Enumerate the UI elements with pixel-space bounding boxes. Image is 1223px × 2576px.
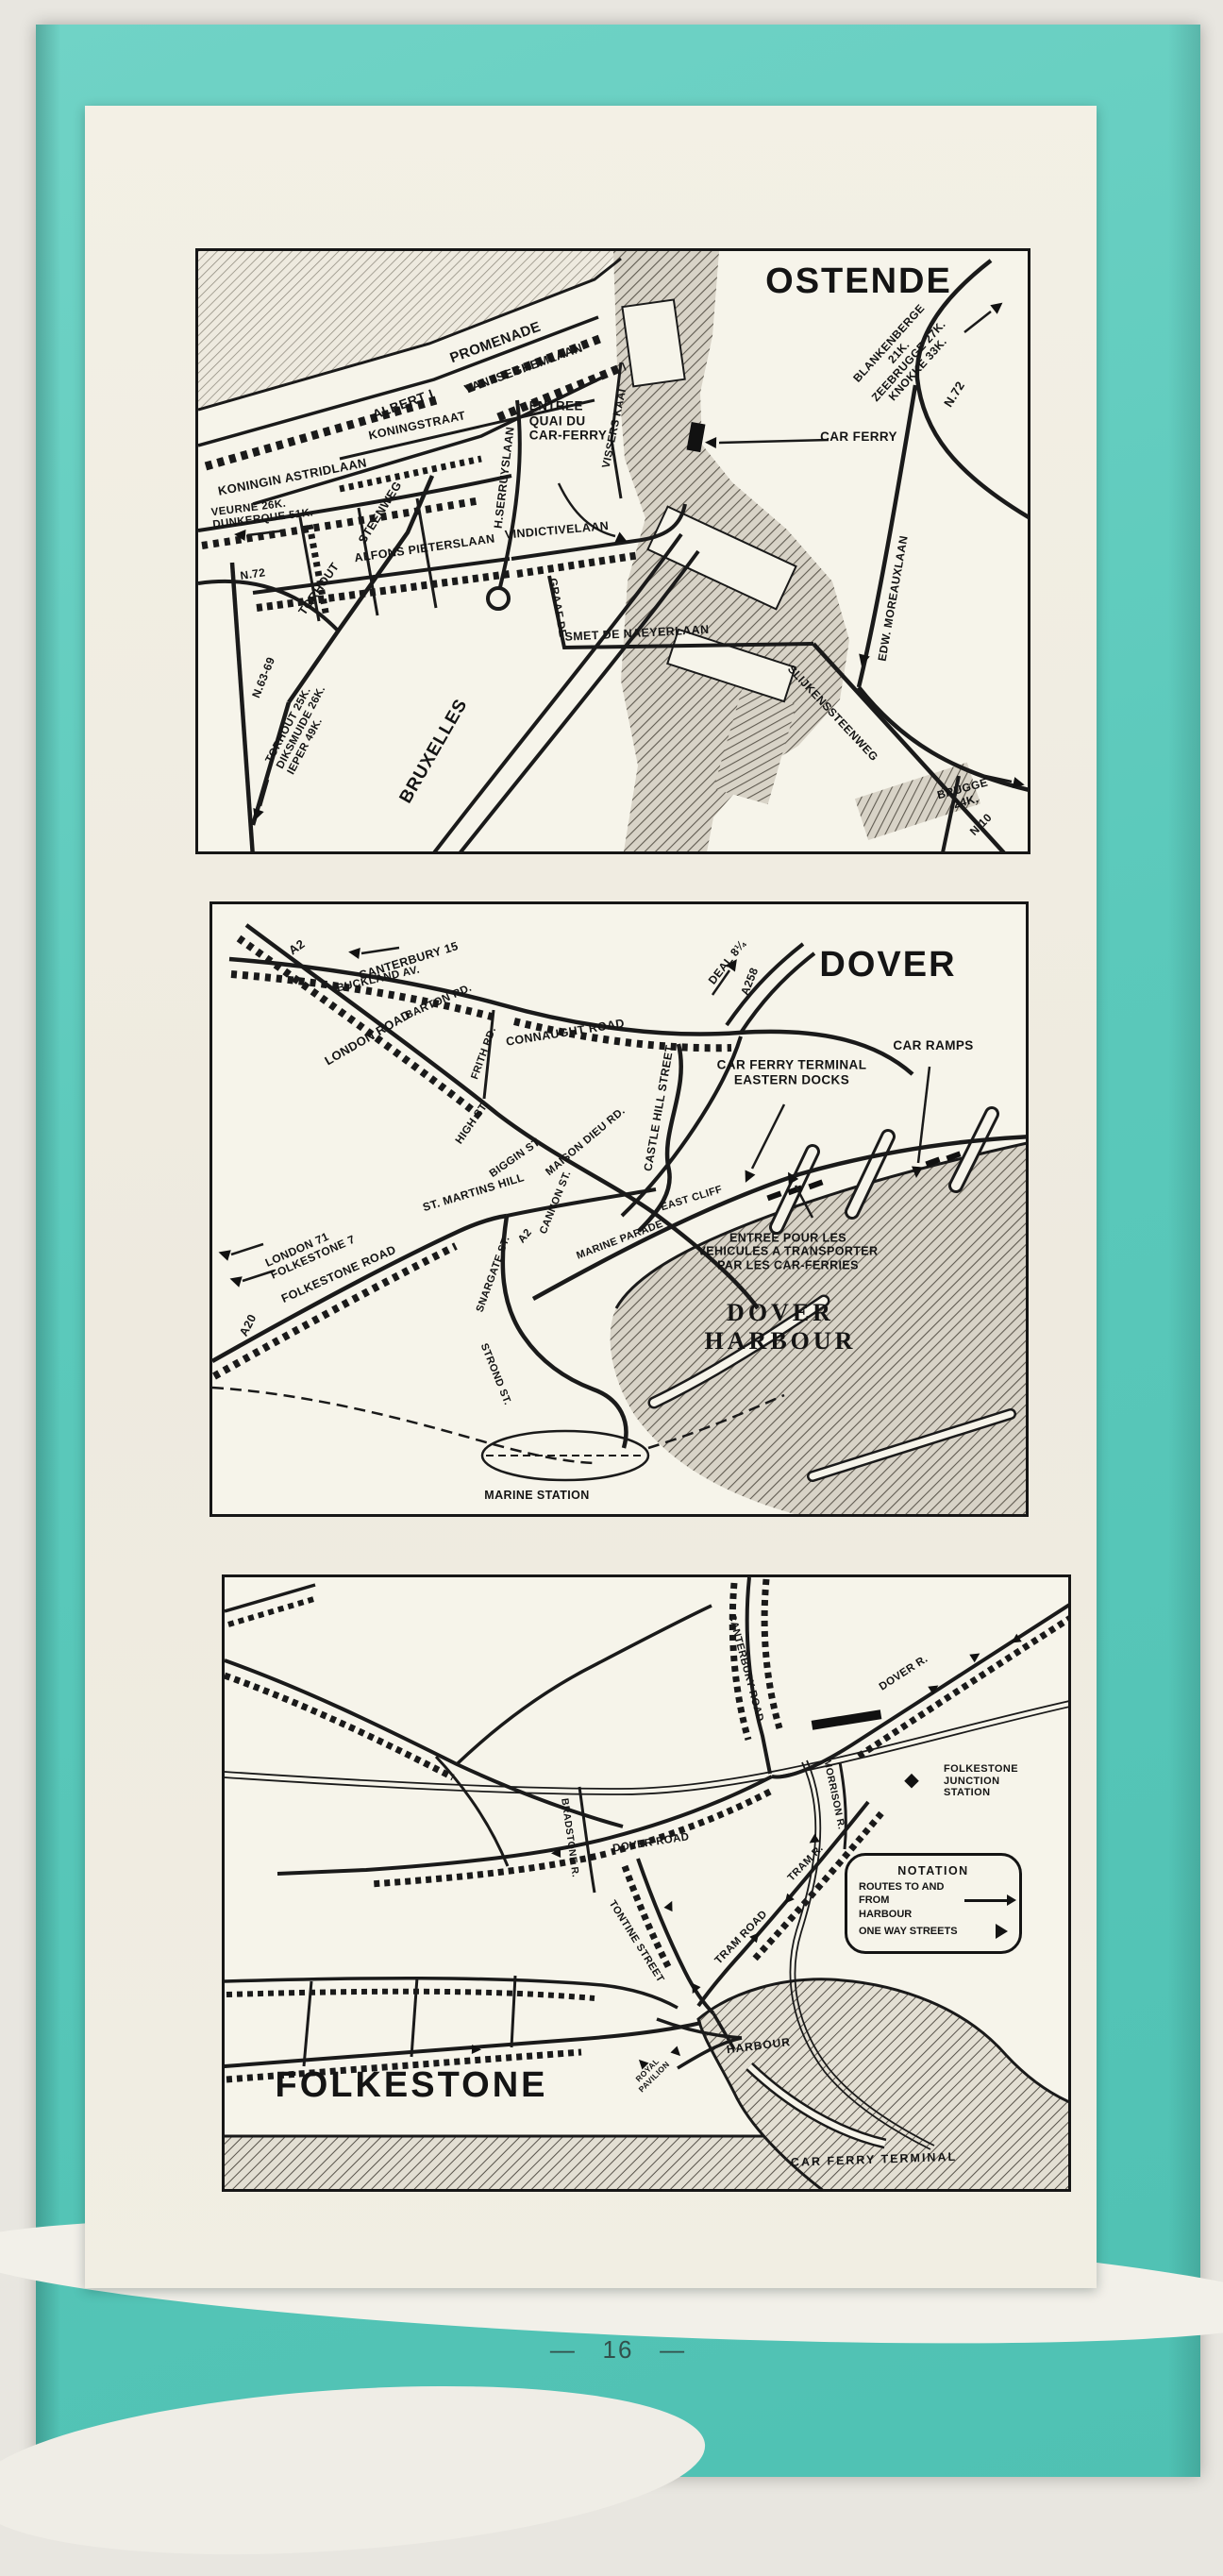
page-left-shadow bbox=[36, 25, 60, 2477]
routes-arrow-icon bbox=[964, 1899, 1008, 1902]
dover-title: DOVER bbox=[819, 947, 956, 983]
cream-panel: OSTENDE PROMENADE ALBERT I VAN ISEGHEMLA… bbox=[85, 106, 1097, 2288]
dover-roads bbox=[212, 904, 1029, 1517]
junction-station-marker bbox=[904, 1774, 919, 1789]
notation-routes-row: ROUTES TO AND FROM HARBOUR bbox=[859, 1880, 1008, 1921]
notation-legend: NOTATION ROUTES TO AND FROM HARBOUR ONE … bbox=[845, 1853, 1022, 1954]
notation-routes-label: ROUTES TO AND FROM HARBOUR bbox=[859, 1880, 964, 1921]
page-number: — 16 — bbox=[36, 2335, 1200, 2365]
page-right-shadow bbox=[1168, 25, 1200, 2477]
label-entree-quai: ENTREE QUAI DU CAR-FERRY bbox=[529, 399, 608, 444]
brochure-page: OSTENDE PROMENADE ALBERT I VAN ISEGHEMLA… bbox=[36, 25, 1200, 2477]
label-car-ferry-terminal: CAR FERRY TERMINAL EASTERN DOCKS bbox=[717, 1057, 867, 1086]
label-junction-station: FOLKESTONE JUNCTION STATION bbox=[944, 1763, 1027, 1799]
one-way-arrow-icon bbox=[996, 1924, 1008, 1939]
notation-oneway-label: ONE WAY STREETS bbox=[859, 1925, 958, 1938]
paper-wave-highlight-2 bbox=[0, 2365, 711, 2576]
label-car-ferry: CAR FERRY bbox=[820, 429, 897, 445]
label-car-ramps: CAR RAMPS bbox=[893, 1038, 973, 1053]
notation-title: NOTATION bbox=[859, 1864, 1008, 1877]
notation-oneway-row: ONE WAY STREETS bbox=[859, 1924, 1008, 1939]
label-marine-station: MARINE STATION bbox=[484, 1489, 589, 1502]
label-entree-vehicules: ENTREE POUR LES VEHICULES A TRANSPORTER … bbox=[698, 1231, 879, 1271]
ostende-map: OSTENDE PROMENADE ALBERT I VAN ISEGHEMLA… bbox=[195, 248, 1030, 854]
folkestone-title: FOLKESTONE bbox=[276, 2067, 548, 2103]
dover-map: DOVER A2 CANTERBURY 15 BUCKLAND AV. BART… bbox=[209, 901, 1029, 1517]
folkestone-map: FOLKESTONE CANTERBURY ROAD DOVER R. FOLK… bbox=[222, 1574, 1071, 2192]
label-dover-harbour: DOVER HARBOUR bbox=[658, 1299, 903, 1355]
